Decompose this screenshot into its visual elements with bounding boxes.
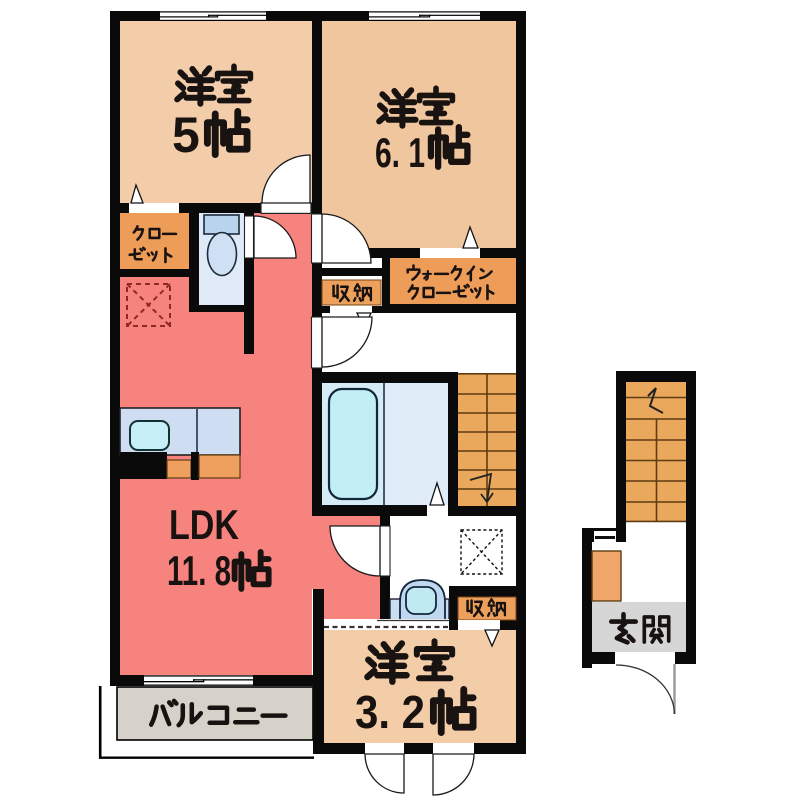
svg-text:5: 5 bbox=[172, 107, 200, 163]
svg-text:3. 2: 3. 2 bbox=[355, 686, 425, 738]
svg-text:6. 1: 6. 1 bbox=[375, 129, 425, 176]
svg-text:11. 8: 11. 8 bbox=[167, 547, 231, 594]
svg-text:LDK: LDK bbox=[169, 501, 239, 548]
